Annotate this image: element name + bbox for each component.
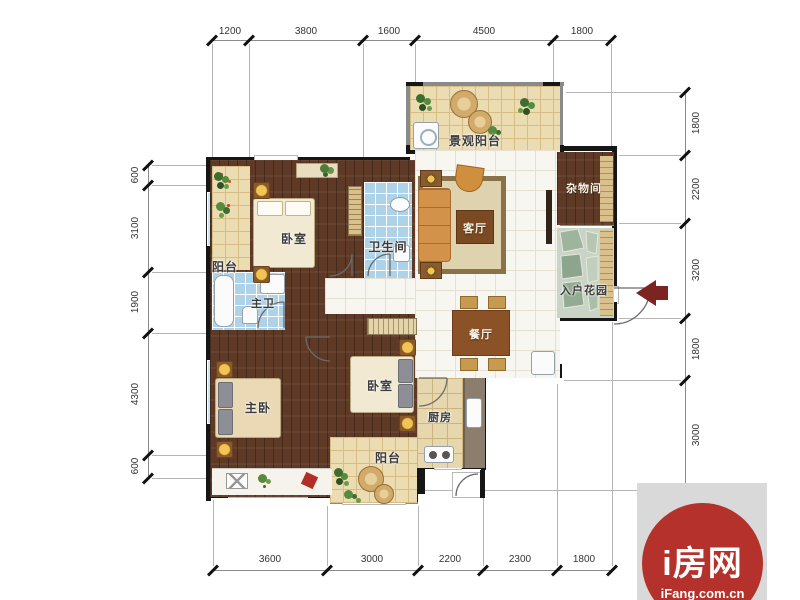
ifang-logo-name: i房网 [642,536,763,585]
dim-label: 3100 [130,206,142,250]
dim-ext-line [566,92,681,93]
ifang-logo-circle: i房网 iFang.com.cn [642,503,763,600]
dim-ext-line [553,44,554,84]
dim-ext-line [619,318,681,319]
dim-ext-line [152,478,206,479]
nightstand-lamp [216,441,233,458]
nightstand-lamp [216,361,233,378]
tv-console [546,190,552,244]
nightstand-lamp [399,415,416,432]
dim-ext-line [612,322,613,566]
dim-label: 1800 [562,554,606,566]
label-bathroom: 卫生间 [362,238,414,255]
burner-icon [442,451,450,459]
pillow [218,409,233,435]
dim-ext-line [557,384,558,566]
label-bedroom-bottom: 卧室 [356,377,404,394]
flower-plant-icon [214,172,223,181]
label-landscape-balcony: 景观阳台 [425,132,525,149]
dim-ext-line [152,185,206,186]
dim-label: 2200 [428,554,472,566]
label-dining-room: 餐厅 [464,326,498,342]
end-table [420,262,442,279]
wall [555,146,617,151]
sink-icon [390,197,410,212]
label-balcony-bottom: 阳台 [364,449,412,466]
dim-label: 4300 [130,372,142,416]
dining-chair [488,296,506,309]
plant-icon [344,490,353,499]
desk [226,473,248,489]
dim-ext-line [418,506,419,566]
dim-ext-line [611,44,612,146]
nightstand-lamp [253,182,270,199]
dim-label: 1800 [691,101,703,145]
label-master-bedroom: 主卧 [236,399,280,416]
dim-label: 2300 [498,554,542,566]
room-balcony-left-floor [212,166,250,270]
dim-label: 1200 [208,26,252,38]
dim-label: 1900 [130,280,142,324]
pillow [285,201,311,216]
dim-ext-line [249,44,250,158]
ifang-logo[interactable]: i房网 iFang.com.cn [637,483,767,600]
dim-ext-line [152,455,206,456]
label-master-bathroom: 主卫 [243,295,283,311]
nightstand-lamp [253,266,270,283]
label-living-room: 客厅 [458,220,492,236]
plant-icon [520,98,529,107]
dim-label: 3000 [691,413,703,457]
entry-garden-wood-strip [600,230,613,316]
dim-ext-line [363,44,364,160]
entry-direction-arrow-icon [636,280,668,306]
pillow [257,201,283,216]
dining-chair [460,296,478,309]
table-lamp-icon [425,265,437,277]
dim-ext-line [213,500,214,566]
dim-label: 1800 [560,26,604,38]
label-bedroom-top: 卧室 [266,230,322,247]
dim-label: 2200 [691,167,703,211]
balcony-table [374,484,394,504]
label-kitchen: 厨房 [420,409,460,425]
wall [480,470,485,498]
potted-plant-icon [258,474,267,483]
dim-label: 600 [130,153,142,197]
table-lamp-icon [425,173,437,185]
sofa [418,188,451,262]
dim-ext-line [619,223,681,224]
dim-label: 3600 [248,554,292,566]
hallway-floor [325,278,417,314]
plant-icon [334,468,343,477]
end-table [420,170,442,187]
plant-icon [416,94,425,103]
label-balcony-left: 阳台 [203,258,247,275]
flower-plant-icon [216,202,225,211]
floorplan-canvas: 1200 3800 1600 4500 1800 3600 3000 2200 … [0,0,800,600]
ifang-logo-domain: iFang.com.cn [642,586,763,600]
dim-ext-line [327,506,328,566]
burner-icon [429,451,437,459]
label-storage-room: 杂物间 [556,180,612,196]
label-entry-garden: 入户花园 [551,282,617,298]
dim-ext-line [152,165,206,166]
potted-plant-icon [320,164,329,173]
dim-ext-line [619,155,681,156]
dim-ext-line [152,272,206,273]
dining-chair [460,358,478,371]
dim-ext-line [564,380,681,381]
dining-chair [488,358,506,371]
dim-label: 3800 [284,26,328,38]
bathtub-icon [214,275,234,327]
dresser [296,163,338,178]
dim-label: 600 [130,444,142,488]
room-bathroom-floor [364,182,412,278]
kitchen-sink-icon [466,398,482,428]
dim-label: 3000 [350,554,394,566]
closet [367,318,417,335]
dim-label: 1600 [367,26,411,38]
stove-icon [424,446,454,463]
nightstand-lamp [399,339,416,356]
wardrobe [348,186,362,236]
dim-ext-line [212,44,213,158]
dim-line [213,570,612,571]
dim-label: 4500 [462,26,506,38]
dim-ext-line [483,498,484,566]
pillow [218,382,233,408]
dim-ext-line [152,333,206,334]
fridge [531,351,555,375]
dim-line [148,165,149,478]
dim-label: 1800 [691,327,703,371]
dim-label: 3200 [691,248,703,292]
dim-ext-line [415,44,416,84]
